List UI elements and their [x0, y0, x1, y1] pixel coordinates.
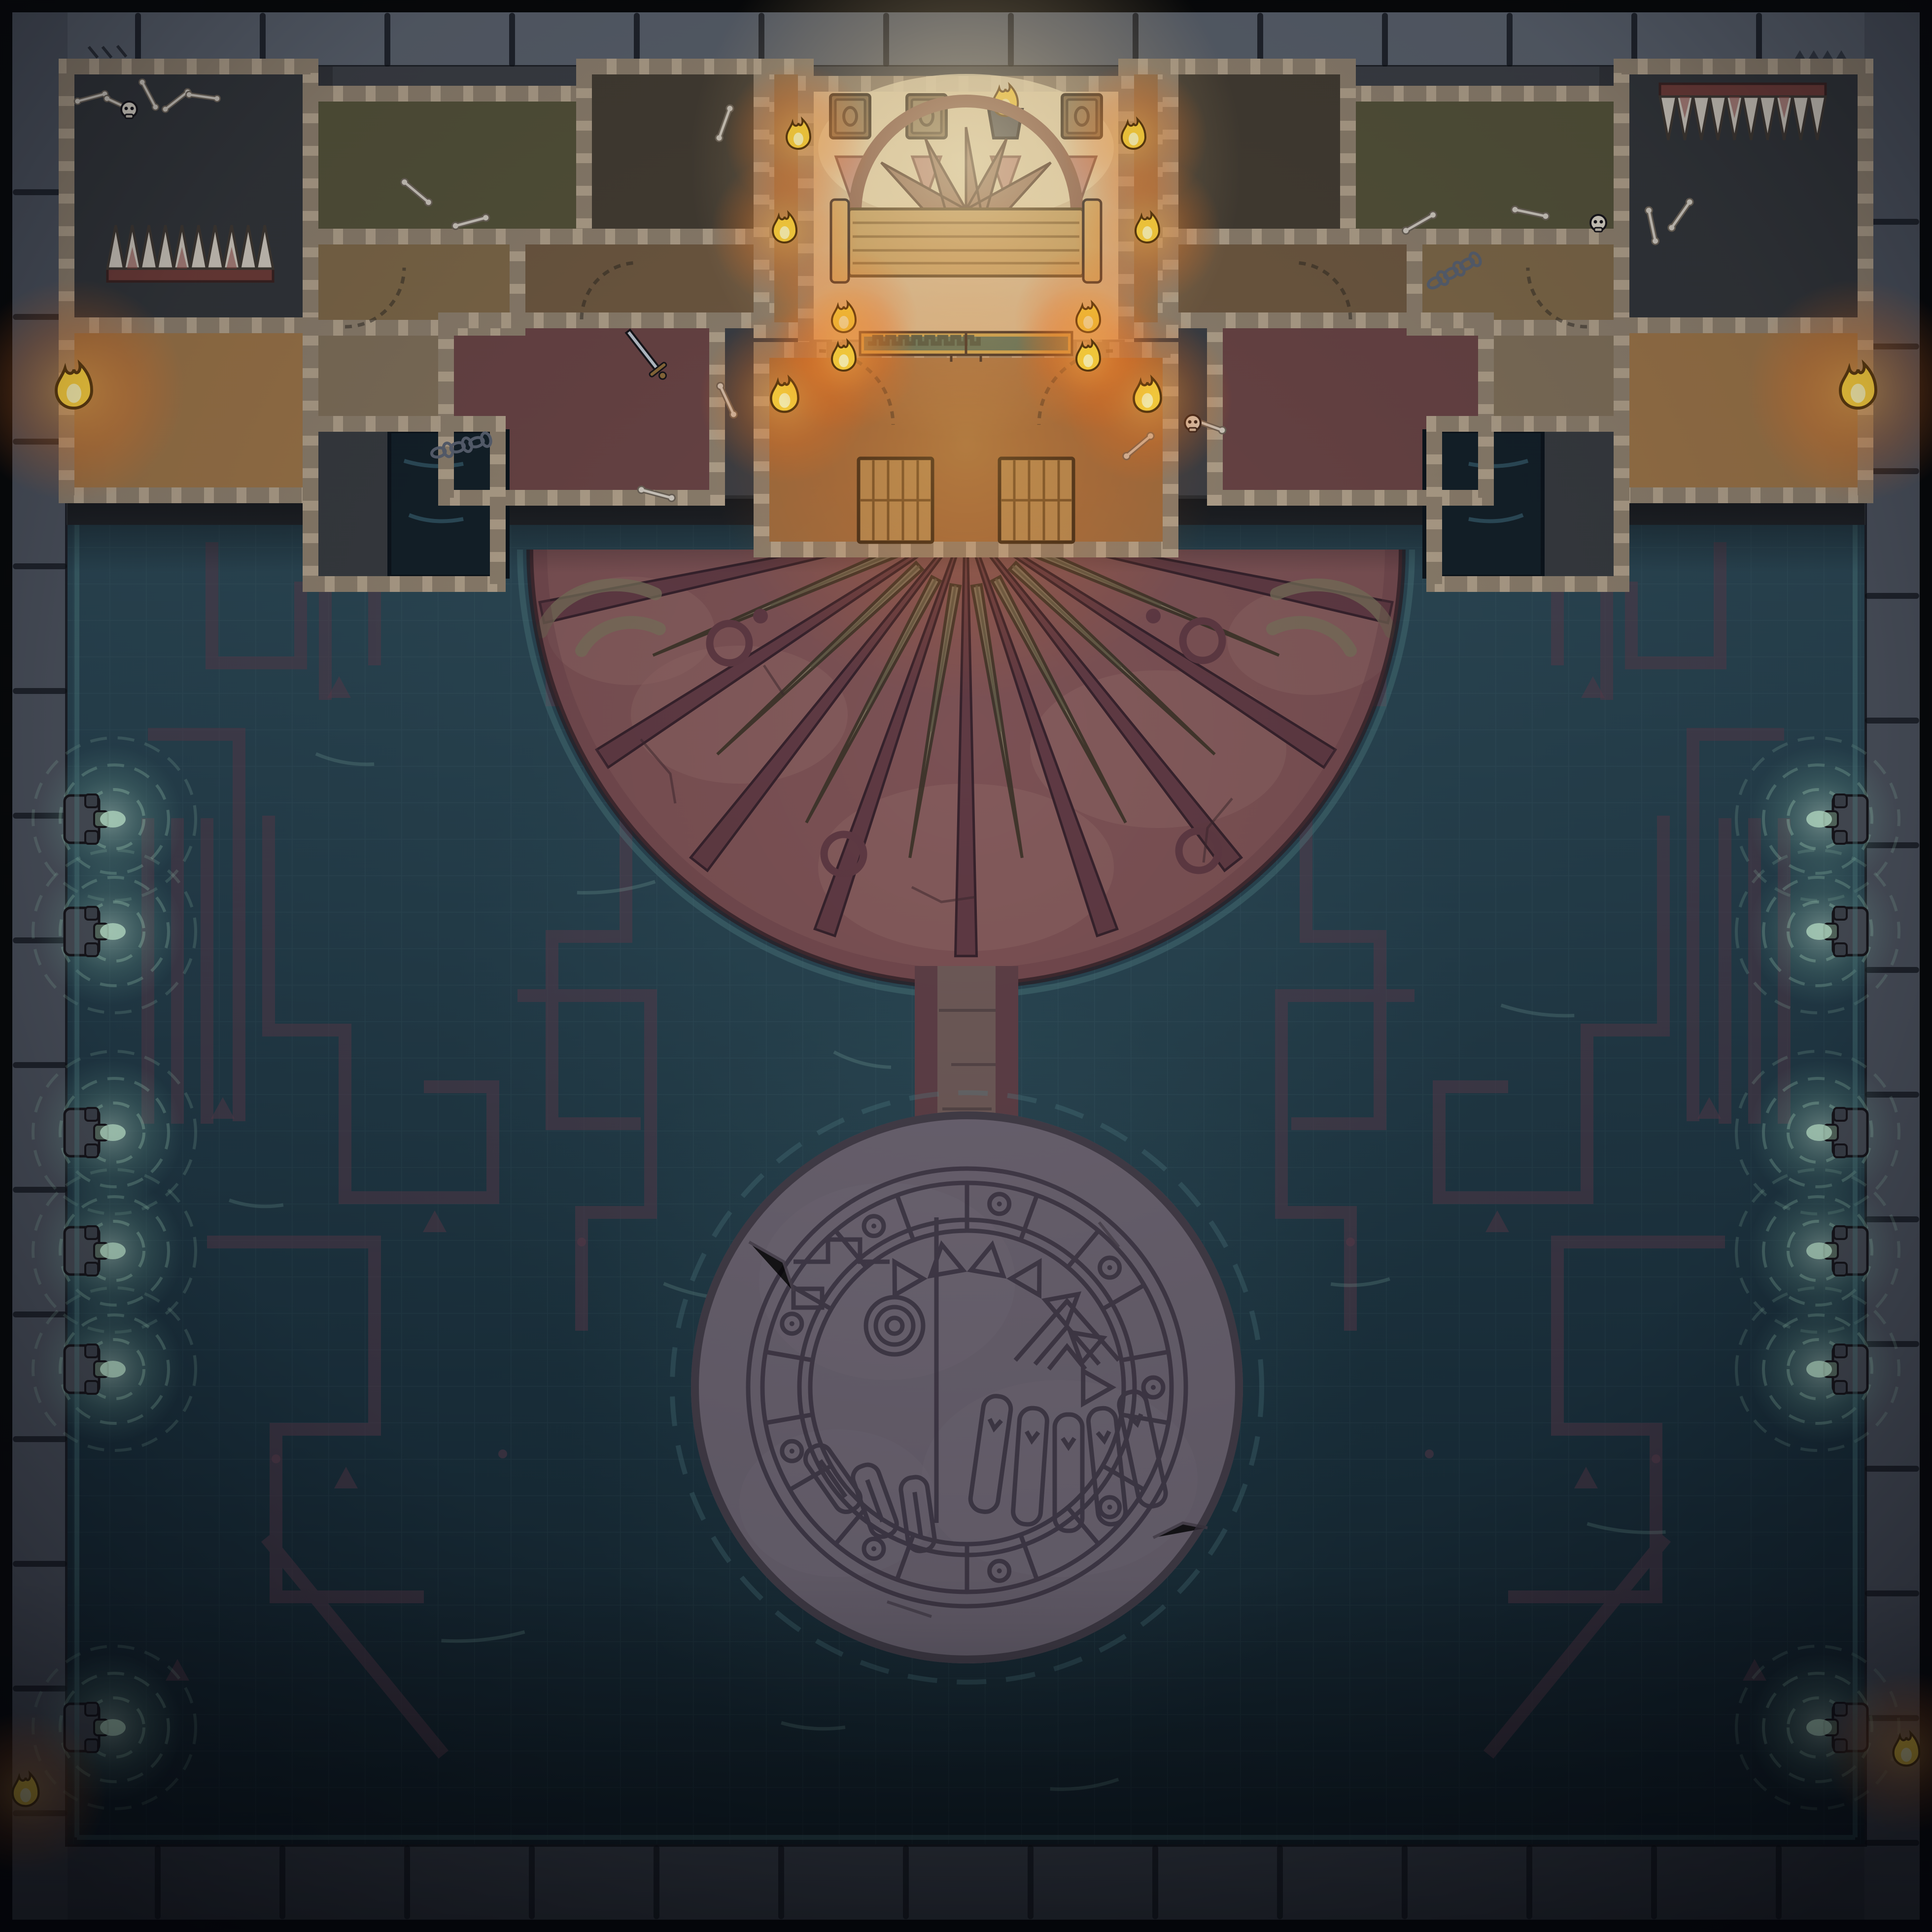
battle-map	[0, 0, 1932, 1932]
bottom-shade	[0, 1577, 1932, 1932]
map-canvas	[0, 0, 1932, 1932]
